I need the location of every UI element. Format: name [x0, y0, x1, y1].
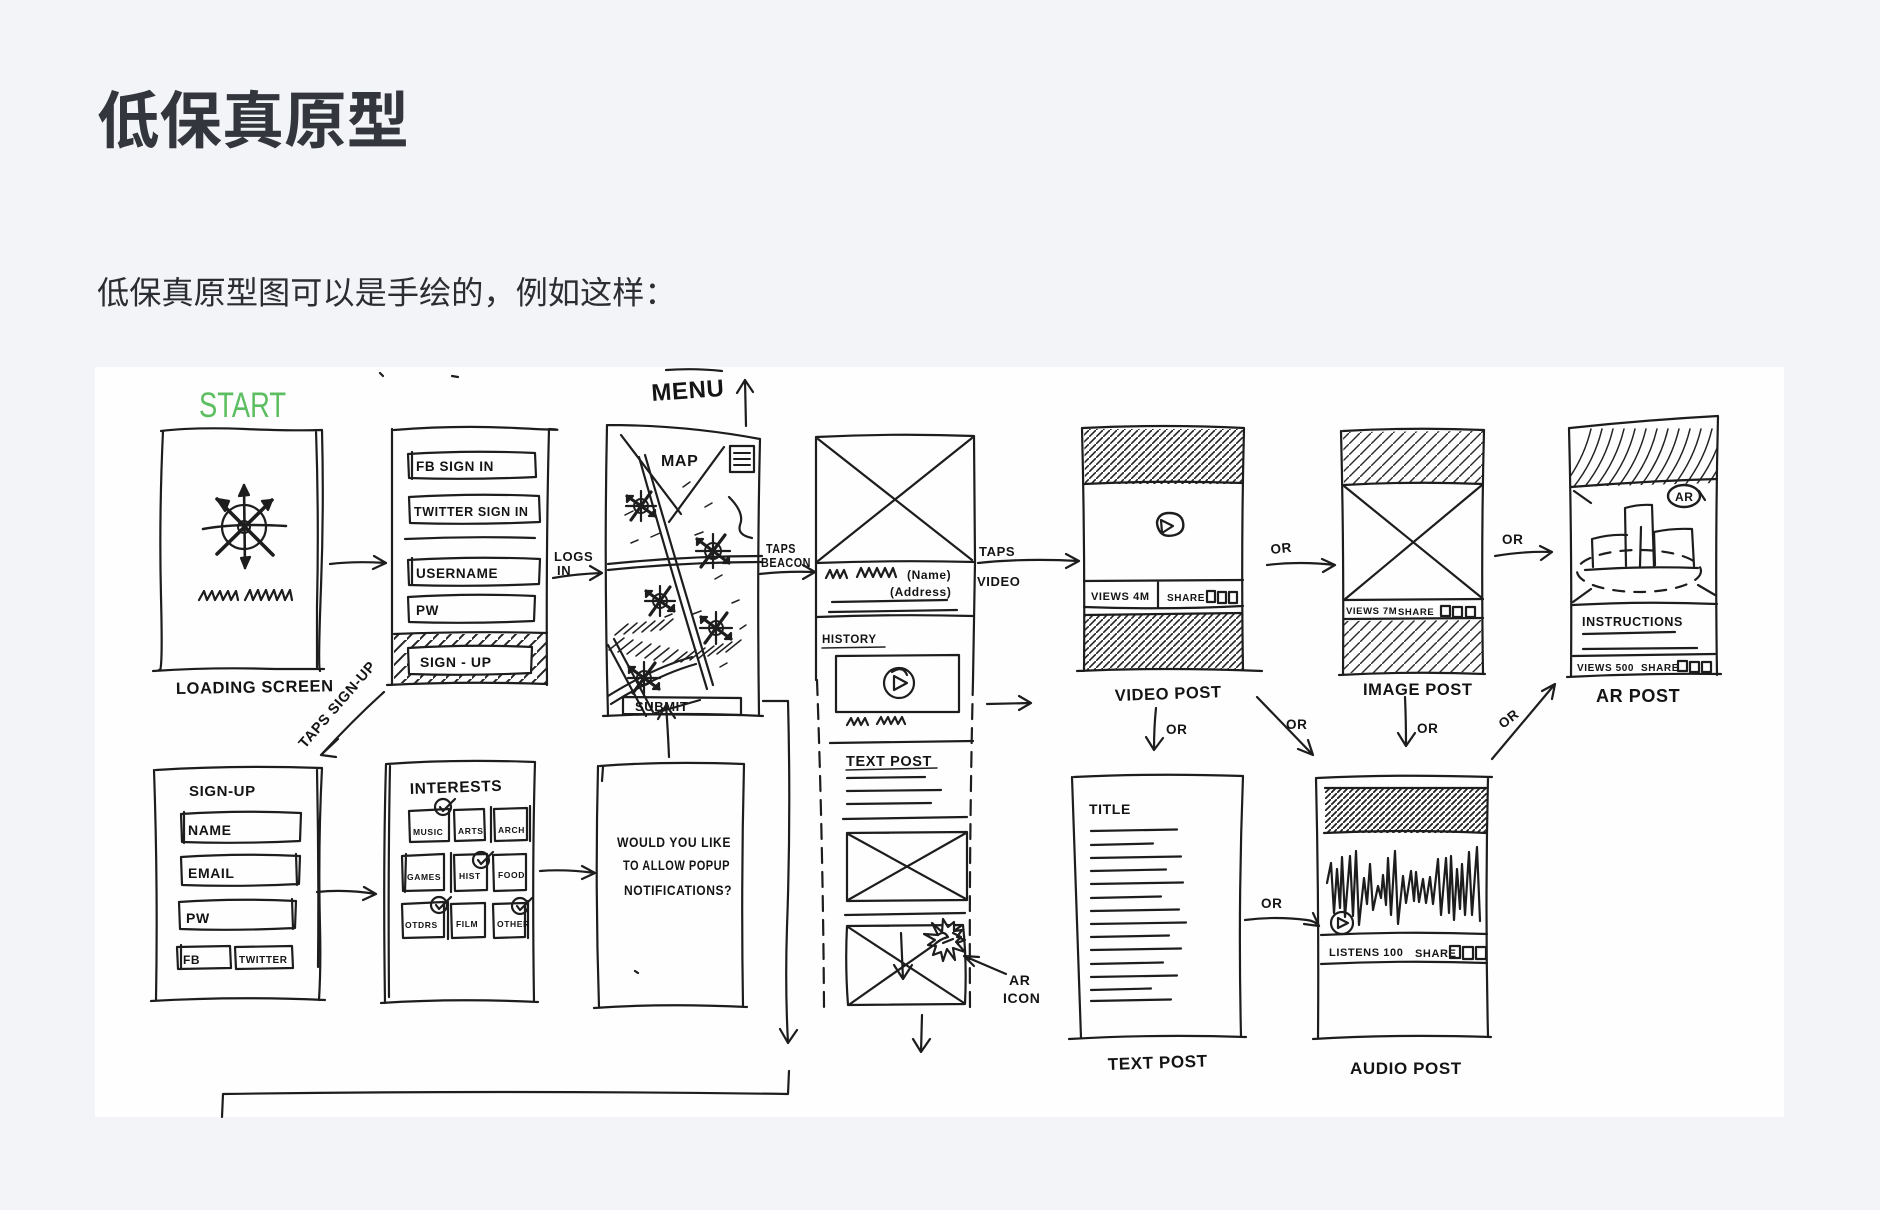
- svg-text:LOGS: LOGS: [554, 549, 593, 564]
- svg-text:MENU: MENU: [651, 375, 726, 407]
- svg-text:HIST: HIST: [459, 871, 481, 881]
- svg-text:ARTS: ARTS: [458, 826, 484, 836]
- svg-text:ICON: ICON: [1003, 990, 1040, 1006]
- svg-text:(Address): (Address): [890, 585, 951, 599]
- svg-text:AUDIO POST: AUDIO POST: [1350, 1059, 1462, 1078]
- svg-text:TAPS: TAPS: [766, 542, 796, 556]
- svg-text:START: START: [199, 386, 286, 425]
- svg-text:TITLE: TITLE: [1089, 801, 1131, 817]
- svg-text:USERNAME: USERNAME: [416, 566, 498, 581]
- svg-text:SHARE: SHARE: [1641, 663, 1679, 674]
- svg-text:OR: OR: [1261, 896, 1282, 911]
- svg-text:HISTORY: HISTORY: [822, 634, 877, 646]
- svg-text:AR: AR: [1675, 490, 1694, 504]
- svg-text:VIEWS 7M: VIEWS 7M: [1346, 606, 1397, 617]
- svg-text:MAP: MAP: [661, 453, 698, 470]
- svg-text:NAME: NAME: [188, 822, 232, 838]
- svg-text:MUSIC: MUSIC: [413, 827, 443, 837]
- svg-text:TEXT POST: TEXT POST: [846, 754, 932, 770]
- svg-text:SHARE: SHARE: [1167, 593, 1205, 604]
- svg-text:NOTIFICATIONS?: NOTIFICATIONS?: [624, 883, 732, 898]
- svg-text:FB SIGN IN: FB SIGN IN: [416, 459, 494, 474]
- svg-text:PW: PW: [186, 910, 210, 926]
- svg-text:TO ALLOW POPUP: TO ALLOW POPUP: [623, 858, 730, 873]
- svg-text:LOADING SCREEN: LOADING SCREEN: [176, 677, 334, 698]
- svg-text:SIGN-UP: SIGN-UP: [189, 783, 256, 800]
- svg-text:VIDEO: VIDEO: [977, 574, 1020, 589]
- svg-text:TEXT POST: TEXT POST: [1107, 1052, 1207, 1074]
- svg-text:SIGN - UP: SIGN - UP: [420, 654, 492, 670]
- svg-text:AR POST: AR POST: [1596, 686, 1680, 706]
- svg-text:VIEWS 4M: VIEWS 4M: [1091, 591, 1150, 603]
- svg-text:VIDEO POST: VIDEO POST: [1115, 683, 1222, 705]
- svg-text:TWITTER: TWITTER: [239, 955, 288, 966]
- svg-text:FB: FB: [183, 953, 200, 967]
- svg-text:EMAIL: EMAIL: [188, 865, 235, 881]
- svg-text:OTHER: OTHER: [497, 919, 530, 929]
- svg-text:OR: OR: [1502, 532, 1523, 547]
- svg-text:IMAGE POST: IMAGE POST: [1363, 681, 1473, 699]
- svg-text:WOULD YOU LIKE: WOULD YOU LIKE: [617, 835, 731, 850]
- svg-text:FILM: FILM: [456, 919, 478, 929]
- svg-text:OR: OR: [1417, 721, 1438, 736]
- svg-text:OR: OR: [1270, 540, 1293, 557]
- svg-text:OTDRS: OTDRS: [405, 920, 438, 930]
- svg-text:INTERESTS: INTERESTS: [410, 778, 503, 798]
- svg-text:BEACON: BEACON: [761, 556, 811, 570]
- svg-text:INSTRUCTIONS: INSTRUCTIONS: [1582, 615, 1683, 629]
- svg-text:AR: AR: [1009, 972, 1030, 988]
- svg-text:FOOD: FOOD: [498, 870, 525, 880]
- svg-text:ARCH: ARCH: [498, 825, 525, 835]
- svg-text:SHARE: SHARE: [1398, 607, 1434, 618]
- svg-text:OR: OR: [1286, 717, 1307, 732]
- svg-text:OR: OR: [1166, 722, 1187, 737]
- svg-text:TAPS: TAPS: [979, 544, 1015, 559]
- svg-text:(Name): (Name): [907, 568, 951, 582]
- svg-text:PW: PW: [416, 603, 439, 618]
- svg-text:LISTENS 100: LISTENS 100: [1329, 947, 1403, 959]
- svg-text:TWITTER SIGN IN: TWITTER SIGN IN: [414, 505, 529, 519]
- svg-text:VIEWS 500: VIEWS 500: [1577, 663, 1634, 674]
- svg-text:GAMES: GAMES: [407, 872, 441, 882]
